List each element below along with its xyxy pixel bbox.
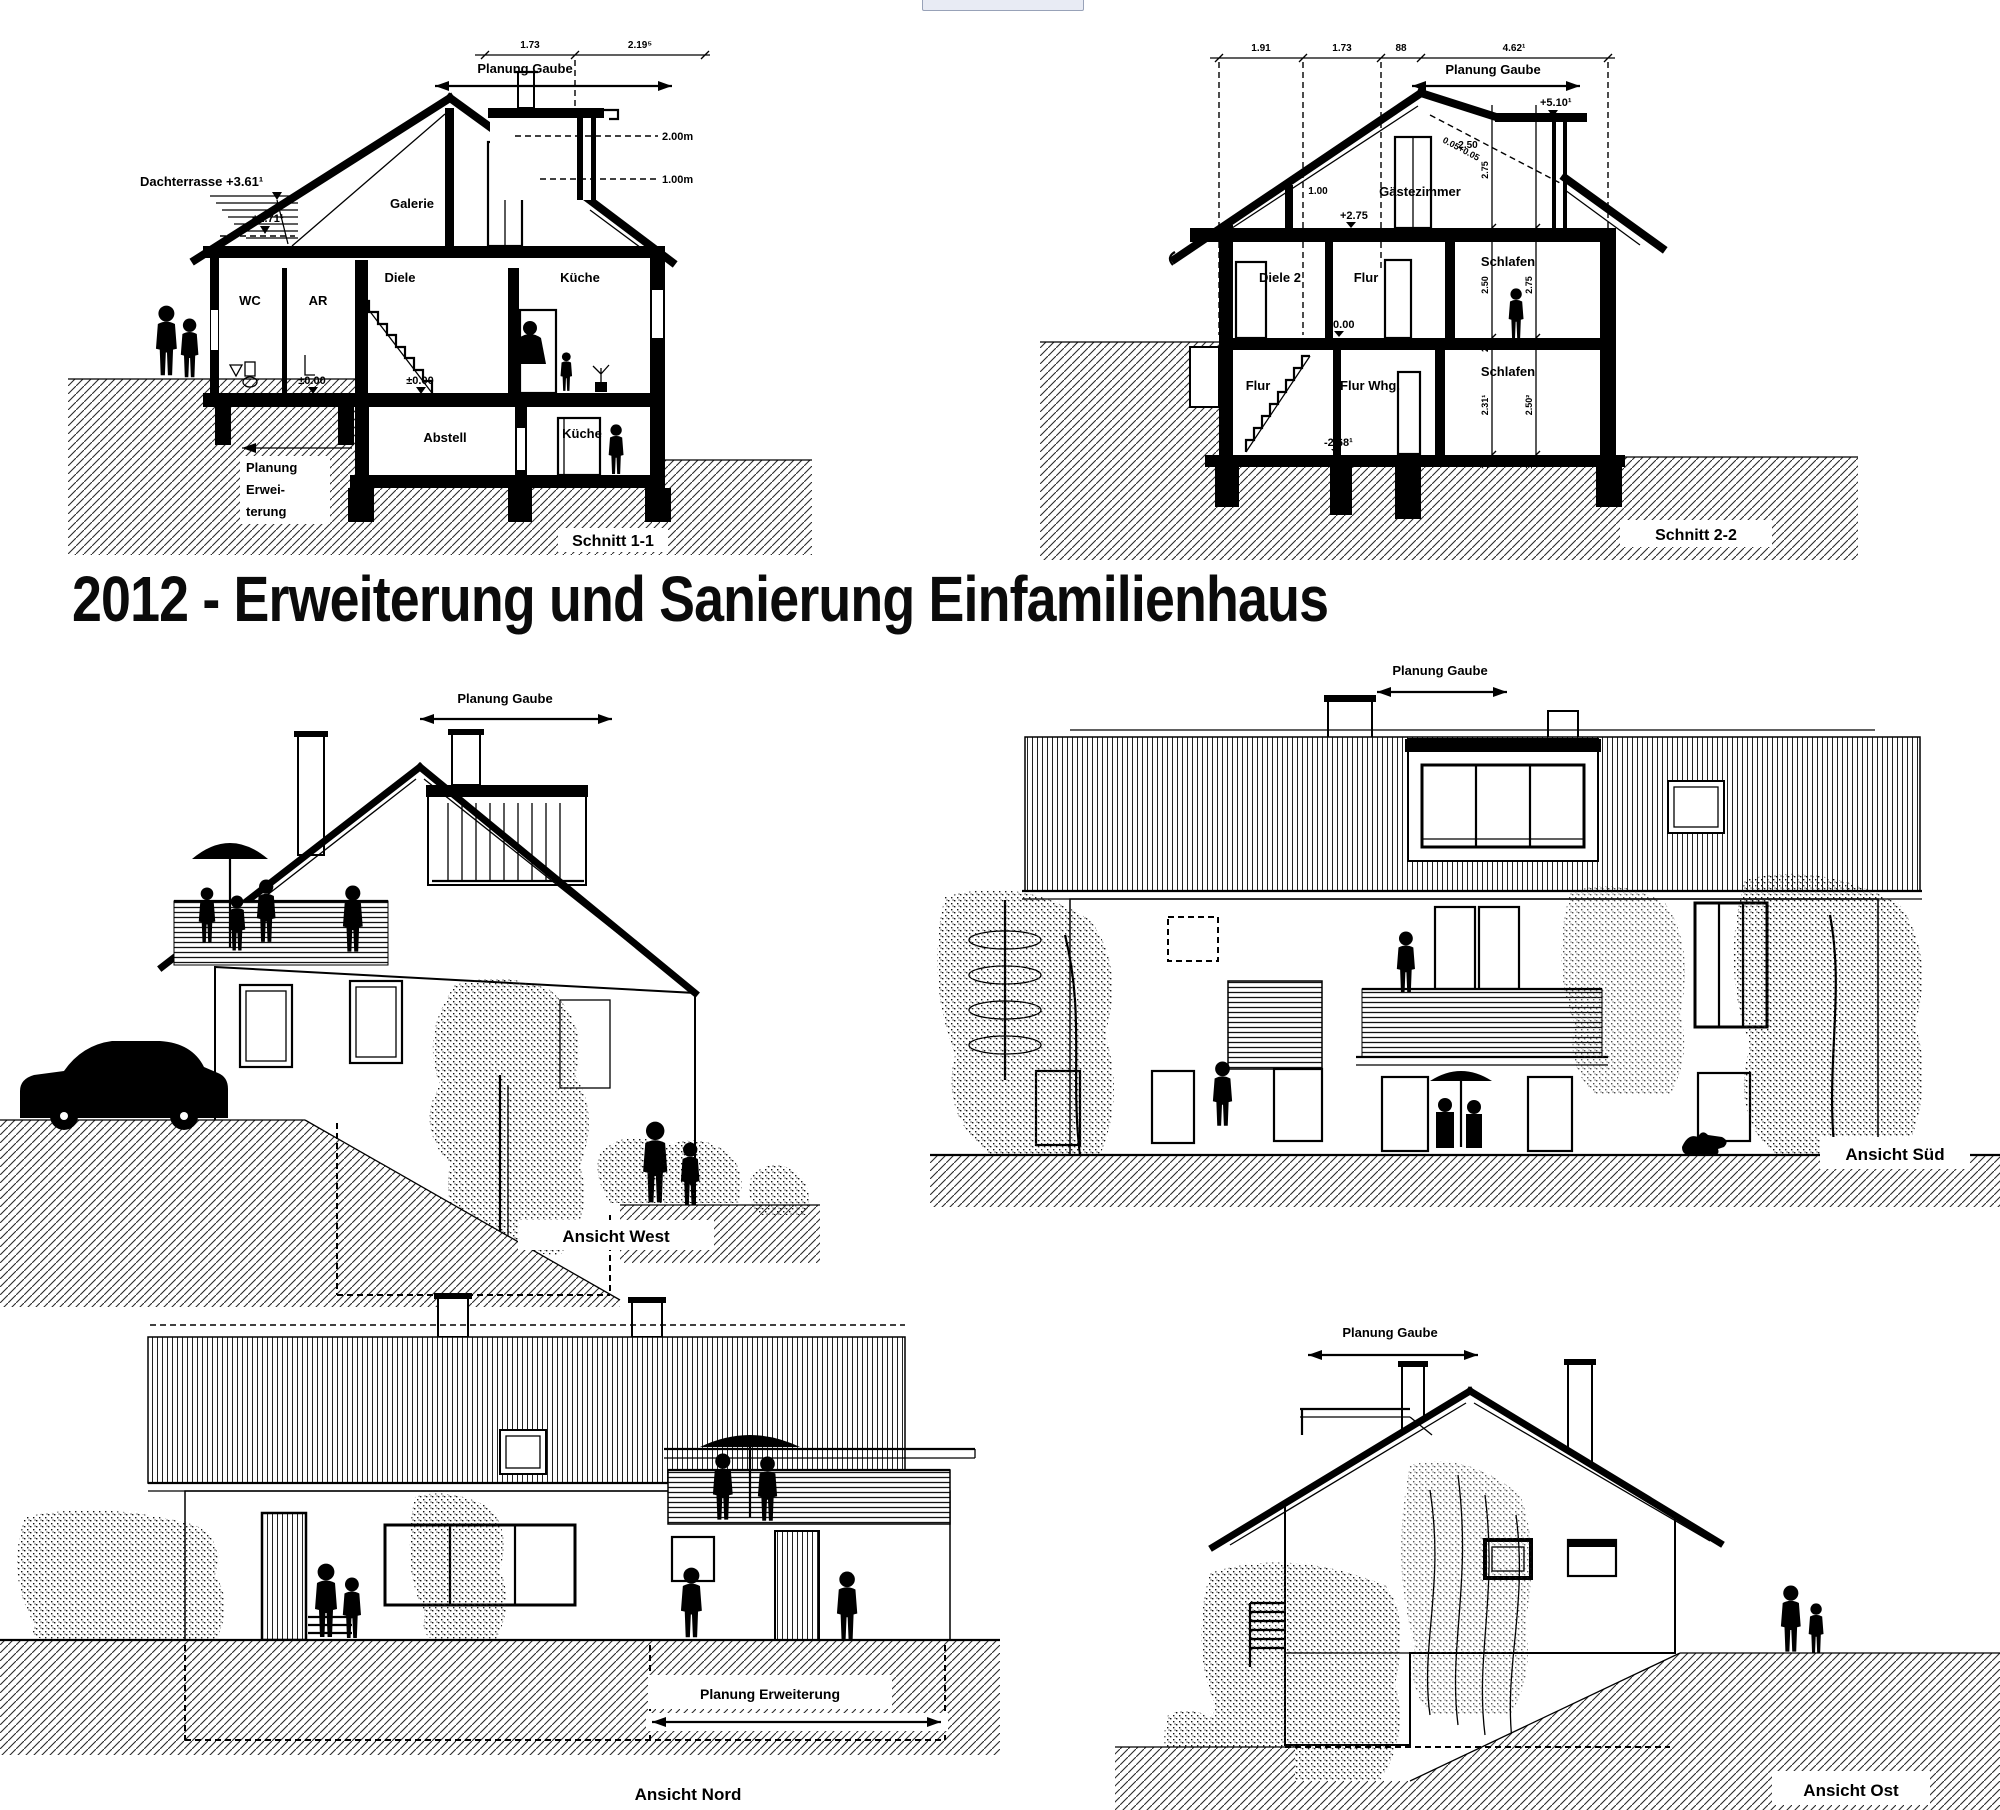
dim-knee-1-00: 1.00 (1308, 186, 1328, 197)
person-silhouette (1509, 288, 1524, 338)
level-zero: ±0.00 (1327, 319, 1354, 331)
ansicht-nord-caption: Ansicht Nord (635, 1785, 742, 1804)
annotation: Planung Gaube (420, 691, 612, 724)
person-silhouette (1781, 1586, 1801, 1652)
schnitt-1-1-caption: Schnitt 1-1 (572, 533, 654, 550)
room-diele: Diele (384, 270, 415, 285)
top-toolbar-fragment[interactable] (922, 0, 1084, 11)
room-kueche-eg: Küche (560, 270, 600, 285)
page-title: 2012 - Erweiterung und Sanierung Einfami… (72, 562, 1500, 636)
slab-27: 27 (1480, 342, 1490, 352)
planung-gaube-label: Planung Gaube (457, 691, 552, 706)
ansicht-ost-drawing: Planung Gaube (1080, 1285, 2000, 1810)
room-kueche-kg: Küche (562, 426, 602, 441)
bush (749, 1165, 809, 1215)
dimensions: 1.73 2.19⁵ Planung Gaube 2.00m 1.00m Dac… (140, 40, 710, 394)
person-silhouette (1809, 1603, 1824, 1653)
line-2m-label: 2.00m (662, 131, 693, 143)
car-silhouette (20, 1041, 228, 1118)
slab-19b: 19 (1524, 459, 1534, 469)
child-silhouette (561, 352, 573, 391)
schnitt-2-2-drawing: 1.91 1.73 88 4.62¹ Planung Gaube +5.10¹ … (1040, 20, 1860, 565)
level-5-10: +5.10¹ (1540, 97, 1572, 109)
room-flur-ug: Flur (1246, 378, 1271, 393)
vdim-ug-b: 2.50² (1524, 395, 1534, 416)
level-zero-left: ±0.00 (298, 375, 325, 387)
umbrella (192, 843, 268, 859)
room-gaestezimmer: Gästezimmer (1379, 184, 1461, 199)
room-schlafen-og: Schlafen (1481, 254, 1535, 269)
schnitt-2-2-caption: Schnitt 2-2 (1655, 527, 1737, 544)
person-silhouette (181, 318, 199, 377)
dim-4-62: 4.62¹ (1503, 43, 1526, 54)
house (17, 1293, 975, 1641)
ansicht-ost-caption: Ansicht Ost (1803, 1781, 1899, 1800)
room-ar: AR (309, 293, 328, 308)
tree (937, 890, 1114, 1155)
ground: Planung Erweiterung (0, 1640, 1000, 1755)
planung-gaube-label: Planung Gaube (1392, 663, 1487, 678)
caption: Schnitt 1-1 (558, 528, 668, 552)
annotation: Planung Gaube (1377, 663, 1507, 697)
ansicht-west-caption: Ansicht West (562, 1227, 670, 1246)
line-1m-label: 1.00m (662, 174, 693, 186)
wc-symbol (230, 365, 242, 376)
level-zero-mid: ±0.00 (406, 375, 433, 387)
sink-symbol (305, 355, 315, 375)
level-minus-2-68: -2.68¹ (1324, 437, 1353, 449)
caption: Schnitt 2-2 (1620, 520, 1772, 547)
tree (1561, 886, 1685, 1095)
dim-1-91: 1.91 (1251, 43, 1271, 54)
slab-19a: 19 (1480, 459, 1490, 469)
room-flur-whg: Flur Whg. (1340, 378, 1400, 393)
ansicht-sued-caption: Ansicht Süd (1845, 1145, 1944, 1164)
slab-25: 25 (1480, 230, 1490, 240)
bush (598, 1137, 742, 1203)
dim-1-73: 1.73 (1332, 43, 1352, 54)
vdim-og-a: 2.50 (1480, 276, 1490, 294)
house (937, 695, 1923, 1155)
annotation: Planung Gaube (1308, 1325, 1478, 1360)
planung-gaube-label: Planung Gaube (1445, 62, 1540, 77)
dim-2-19: 2.19⁵ (628, 40, 652, 51)
room-galerie: Galerie (390, 196, 434, 211)
building-section (1170, 93, 1662, 519)
ansicht-sued-drawing: Planung Gaube (930, 635, 2000, 1215)
room-schlafen-ug: Schlafen (1481, 364, 1535, 379)
ansicht-west-drawing: Planung Gaube (0, 655, 820, 1310)
planung-gaube-label: Planung Gaube (477, 61, 572, 76)
person-silhouette (156, 306, 177, 376)
ansicht-nord-drawing: Planung Erweiterung Ansicht Nord (0, 1285, 1000, 1810)
room-wc: WC (239, 293, 261, 308)
room-diele-2: Diele 2 (1259, 270, 1301, 285)
room-flur-og: Flur (1354, 270, 1379, 285)
dim-88: 88 (1395, 43, 1407, 54)
terrace-door (775, 1531, 819, 1640)
entry-door (262, 1513, 306, 1640)
planung-erweiterung-2: Erwei- (246, 482, 285, 497)
tree (1401, 1461, 1531, 1715)
level-2-75: +2.75 (1340, 210, 1368, 222)
drawing-sheet: 2012 - Erweiterung und Sanierung Einfami… (0, 0, 2000, 1810)
planung-erweiterung-label: Planung Erweiterung (700, 1686, 840, 1702)
vdim-ug-a: 2.31¹ (1480, 395, 1490, 416)
level-2-71: +2.71¹ (252, 213, 284, 225)
tree (17, 1510, 225, 1641)
tree (1734, 874, 1923, 1155)
plant (593, 365, 609, 392)
vdim-attic: 2.75 (1480, 161, 1490, 179)
planung-erweiterung-1: Planung (246, 460, 297, 475)
schnitt-1-1-drawing: 1.73 2.19⁵ Planung Gaube 2.00m 1.00m Dac… (60, 10, 820, 565)
dim-1-73: 1.73 (520, 40, 540, 51)
planung-gaube-label: Planung Gaube (1342, 1325, 1437, 1340)
planung-erweiterung-3: terung (246, 504, 287, 519)
vdim-og-b: 2.75 (1524, 276, 1534, 294)
room-abstell: Abstell (423, 430, 466, 445)
person-silhouette (609, 424, 624, 474)
dachterrasse-label: Dachterrasse +3.61¹ (140, 174, 263, 189)
dim-dormer-2-50: 2.50 (1458, 140, 1478, 151)
